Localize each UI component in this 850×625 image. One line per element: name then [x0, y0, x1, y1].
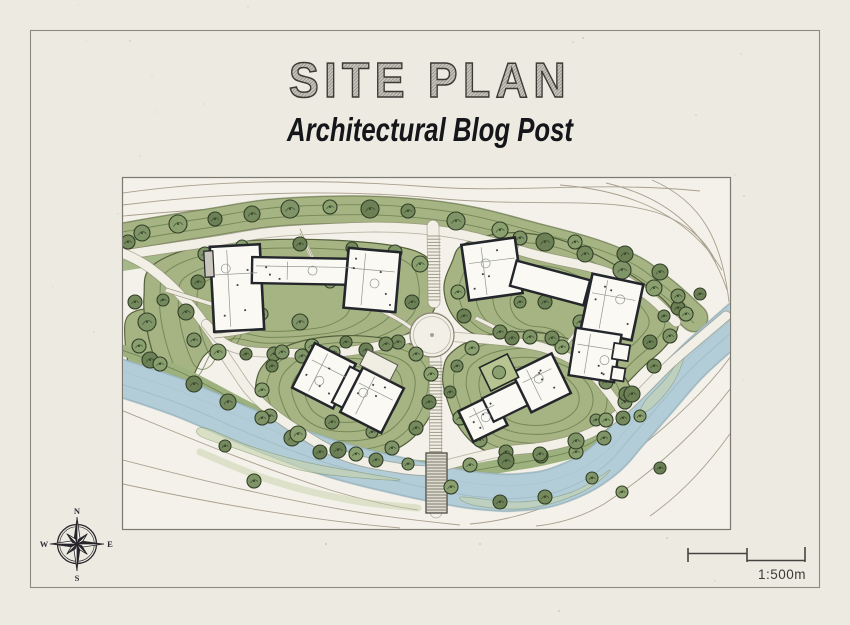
svg-text:1:500m: 1:500m — [758, 567, 806, 582]
svg-text:SITE PLAN: SITE PLAN — [289, 54, 571, 108]
svg-text:S: S — [75, 573, 80, 583]
svg-text:W: W — [40, 539, 49, 549]
svg-text:Architectural Blog Post: Architectural Blog Post — [286, 111, 574, 148]
svg-text:E: E — [107, 539, 113, 549]
svg-text:N: N — [74, 506, 81, 516]
